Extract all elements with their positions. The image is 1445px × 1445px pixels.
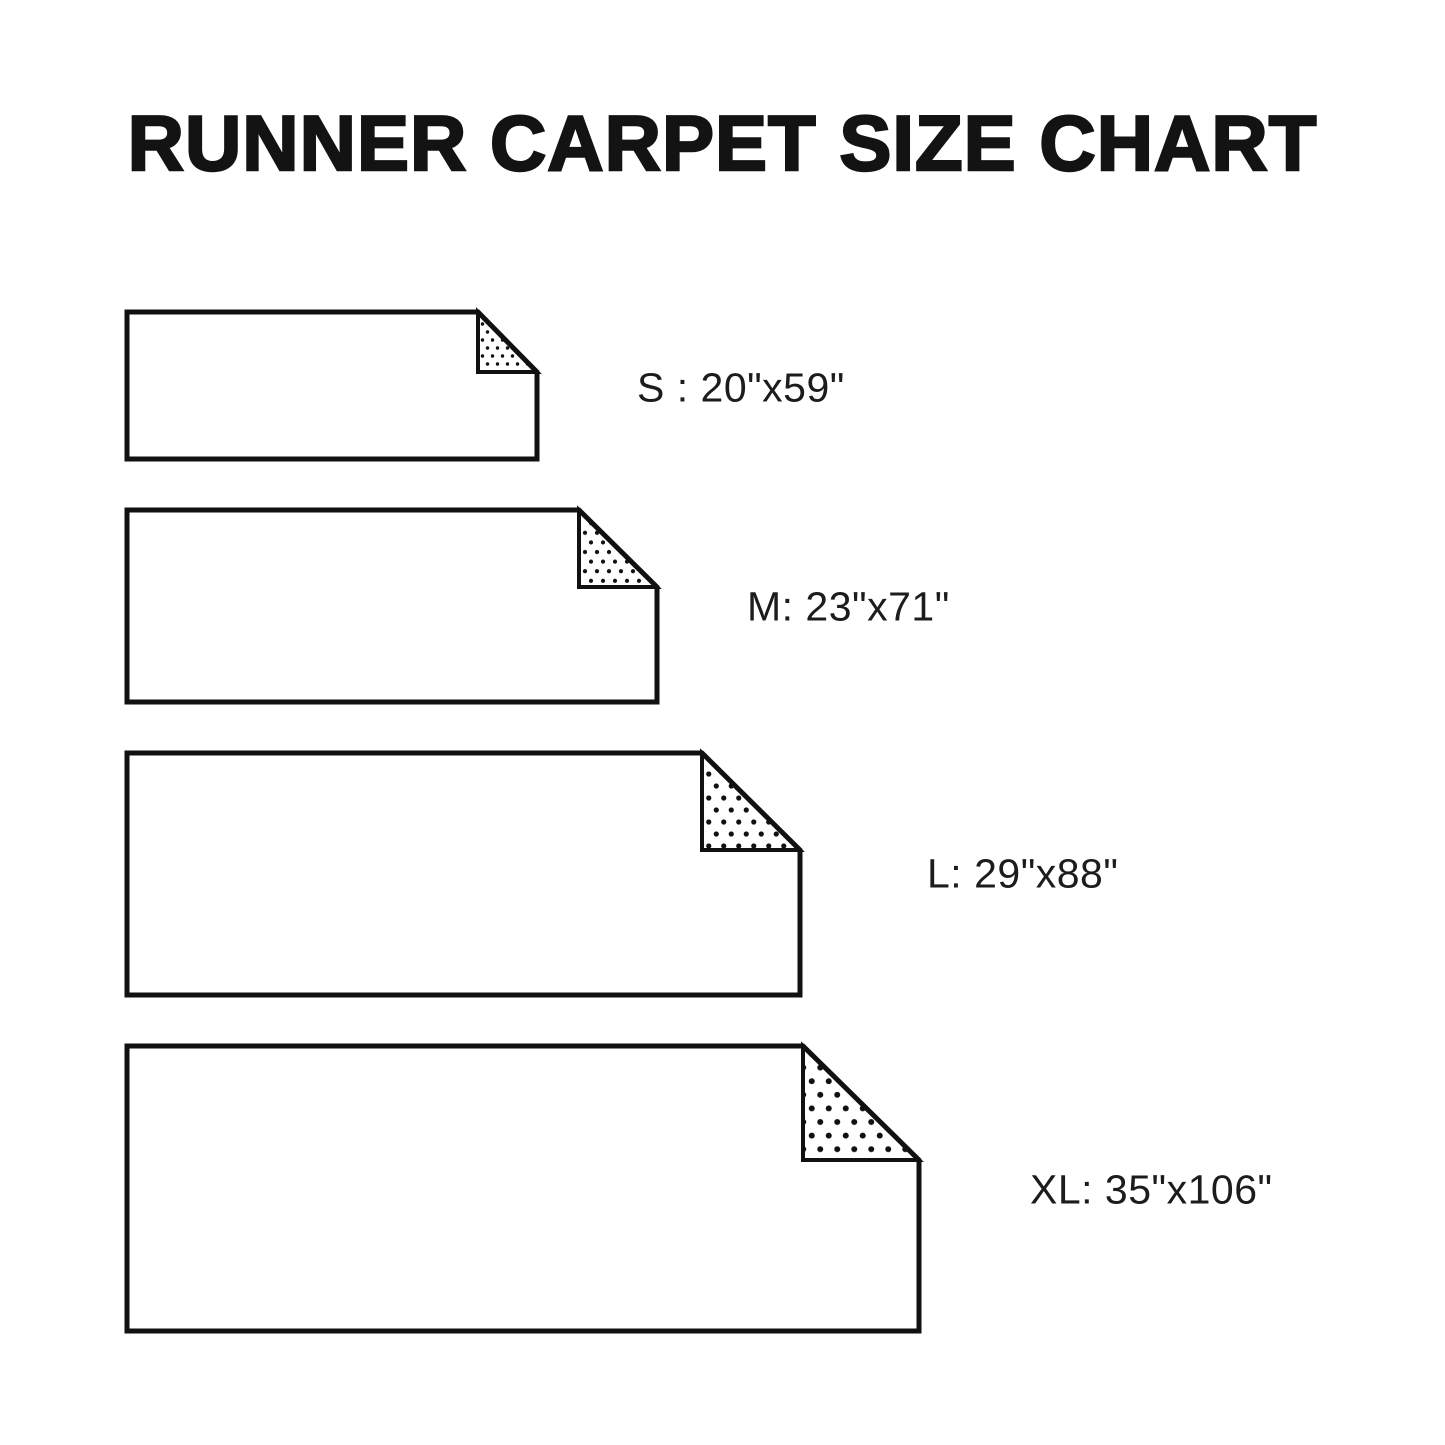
- carpet-outline-xl: [127, 1046, 919, 1331]
- carpet-m: [127, 510, 657, 702]
- size-label-m: M: 23"x71": [747, 587, 950, 628]
- carpet-outline-l: [127, 753, 800, 995]
- size-label-xl: XL: 35"x106": [1030, 1170, 1273, 1211]
- carpet-fold-corner-l: [702, 753, 800, 850]
- size-label-s: S : 20"x59": [637, 368, 845, 409]
- carpet-fold-corner-s: [478, 312, 537, 372]
- carpet-fold-corner-xl: [803, 1046, 919, 1160]
- runner-carpet-size-chart: RUNNER CARPET SIZE CHART S : 20"x59" M: …: [0, 0, 1445, 1445]
- carpet-l: [127, 753, 800, 995]
- carpet-outline-s: [127, 312, 537, 459]
- size-label-l: L: 29"x88": [927, 854, 1118, 895]
- carpet-diagrams: [0, 0, 1445, 1445]
- carpet-xl: [127, 1046, 919, 1331]
- carpet-fold-corner-m: [579, 510, 657, 587]
- carpet-s: [127, 312, 537, 459]
